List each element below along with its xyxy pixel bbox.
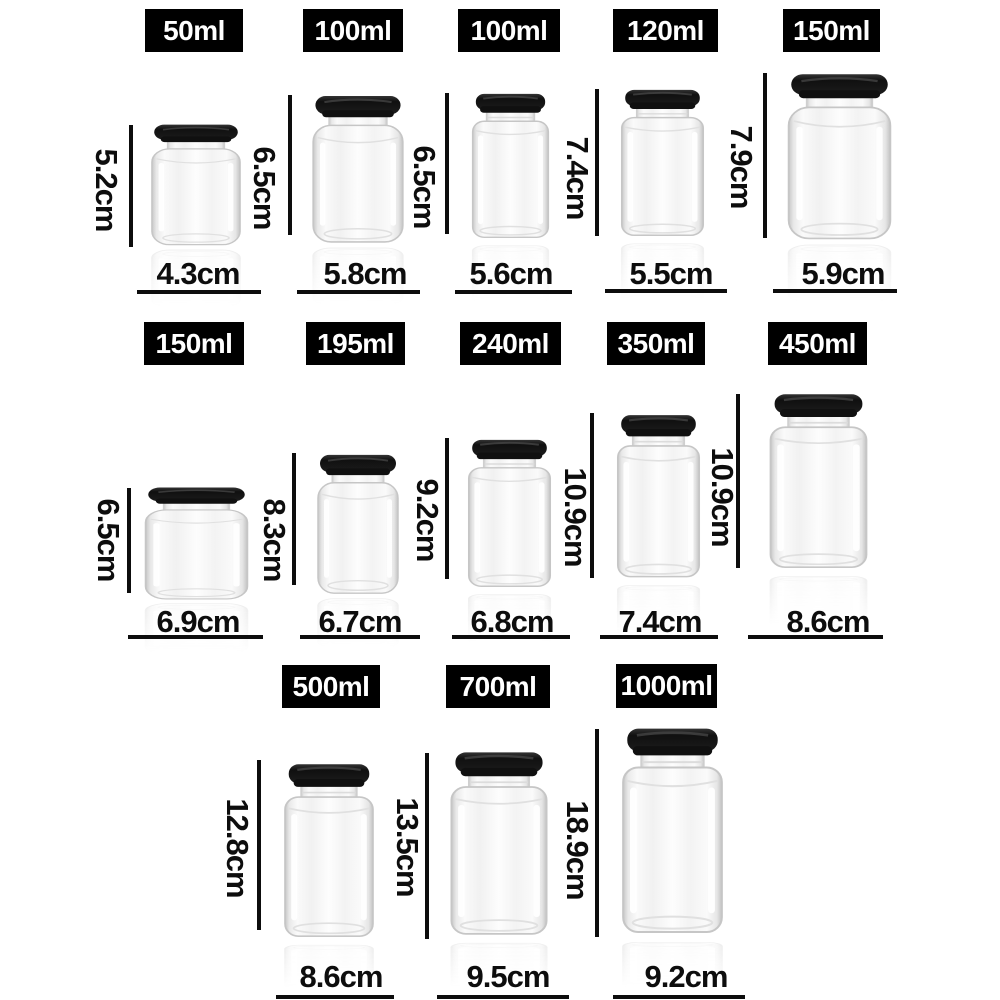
jar-image	[141, 123, 251, 248]
volume-label: 100ml	[458, 9, 560, 52]
jar-image	[458, 92, 563, 243]
measure-height-line	[445, 438, 449, 579]
jar-size-comparison-chart: 50ml 5.2cm 4.3cm 100ml 6.5cm 5.8cm 100ml…	[0, 0, 1000, 1000]
volume-label: 100ml	[303, 9, 403, 52]
measure-height-value: 8.3cm	[256, 499, 292, 582]
measure-width-line	[605, 289, 727, 293]
measure-width-line	[748, 635, 883, 639]
measure-height-line	[257, 760, 261, 930]
measure-height-value: 18.9cm	[559, 800, 595, 899]
measure-height-value: 12.8cm	[219, 798, 255, 897]
measure-width-line	[137, 290, 261, 294]
volume-label: 50ml	[145, 9, 243, 52]
measure-height-value: 13.5cm	[389, 797, 425, 896]
volume-label: 195ml	[306, 322, 405, 365]
volume-label: 150ml	[783, 9, 880, 52]
measure-height-line	[292, 453, 296, 585]
measure-height-line	[763, 73, 767, 238]
measure-width-value: 5.8cm	[324, 256, 407, 292]
measure-height-value: 7.4cm	[559, 137, 595, 220]
measure-width-line	[455, 290, 572, 294]
jar-image	[433, 750, 565, 941]
volume-label: 120ml	[613, 9, 718, 52]
jar-image	[602, 413, 715, 583]
measure-height-value: 6.5cm	[246, 147, 282, 230]
jar-image	[604, 726, 741, 940]
measure-width-line	[300, 635, 420, 639]
volume-label-text: 1000ml	[621, 670, 713, 702]
measure-height-line	[127, 488, 131, 593]
measure-width-line	[128, 635, 263, 639]
volume-label-text: 240ml	[472, 328, 549, 360]
measure-height-value: 10.9cm	[557, 467, 593, 566]
measure-height-value: 5.2cm	[88, 149, 124, 232]
measure-width-value: 4.3cm	[157, 256, 240, 292]
measure-width-value: 5.6cm	[470, 256, 553, 292]
volume-label: 1000ml	[616, 664, 717, 708]
volume-label-text: 700ml	[460, 671, 537, 703]
volume-label: 150ml	[144, 322, 244, 365]
measure-width-value: 5.9cm	[802, 256, 885, 292]
measure-width-value: 9.2cm	[645, 959, 728, 995]
volume-label: 350ml	[607, 322, 705, 365]
volume-label-text: 150ml	[793, 15, 870, 47]
jar-image	[776, 72, 903, 243]
measure-width-line	[276, 995, 394, 999]
measure-height-line	[595, 89, 599, 236]
volume-label: 500ml	[282, 665, 380, 708]
jar-image	[302, 94, 414, 246]
jar-image	[308, 453, 408, 597]
volume-label-text: 50ml	[163, 15, 225, 47]
measure-width-value: 9.5cm	[467, 959, 550, 995]
volume-label-text: 195ml	[317, 328, 394, 360]
measure-width-line	[773, 289, 897, 293]
measure-height-line	[595, 729, 599, 937]
jar-image	[752, 392, 885, 574]
measure-height-value: 6.5cm	[90, 499, 126, 582]
measure-height-line	[288, 95, 292, 235]
measure-width-value: 8.6cm	[300, 959, 383, 995]
volume-label-text: 100ml	[471, 15, 548, 47]
volume-label-text: 150ml	[156, 328, 233, 360]
jar-image	[606, 88, 719, 241]
volume-label: 450ml	[768, 322, 867, 365]
measure-height-value: 6.5cm	[406, 146, 442, 229]
measure-width-line	[452, 635, 570, 639]
volume-label: 700ml	[446, 665, 550, 708]
measure-height-value: 10.9cm	[704, 447, 740, 546]
measure-height-value: 7.9cm	[723, 126, 759, 209]
measure-width-line	[600, 635, 718, 639]
measure-height-line	[445, 93, 449, 234]
measure-width-line	[613, 995, 745, 999]
volume-label-text: 450ml	[779, 328, 856, 360]
volume-label-text: 350ml	[618, 328, 695, 360]
measure-width-value: 5.5cm	[630, 256, 713, 292]
volume-label: 240ml	[460, 322, 561, 365]
jar-image	[453, 438, 566, 592]
jar-image	[268, 762, 390, 943]
measure-height-line	[129, 125, 133, 247]
volume-label-text: 100ml	[315, 15, 392, 47]
measure-width-line	[297, 290, 420, 294]
volume-label-text: 120ml	[627, 15, 704, 47]
jar-image	[133, 486, 260, 602]
volume-label-text: 500ml	[293, 671, 370, 703]
measure-width-line	[437, 995, 569, 999]
measure-height-value: 9.2cm	[409, 479, 445, 562]
measure-height-line	[425, 753, 429, 939]
